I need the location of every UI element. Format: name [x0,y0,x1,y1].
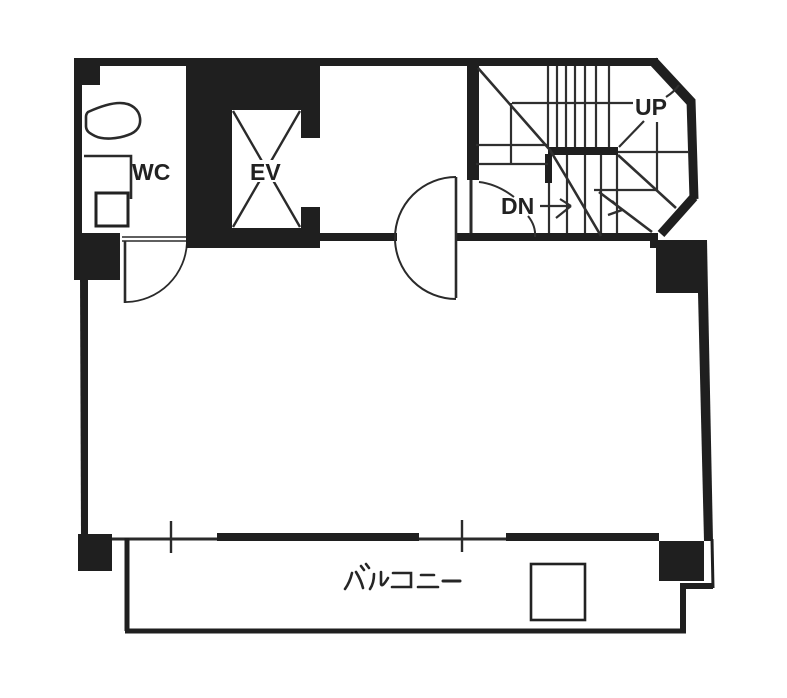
svg-text:DN: DN [501,193,534,219]
svg-text:EV: EV [250,159,281,185]
svg-text:WC: WC [132,159,170,185]
svg-text:UP: UP [635,94,667,120]
